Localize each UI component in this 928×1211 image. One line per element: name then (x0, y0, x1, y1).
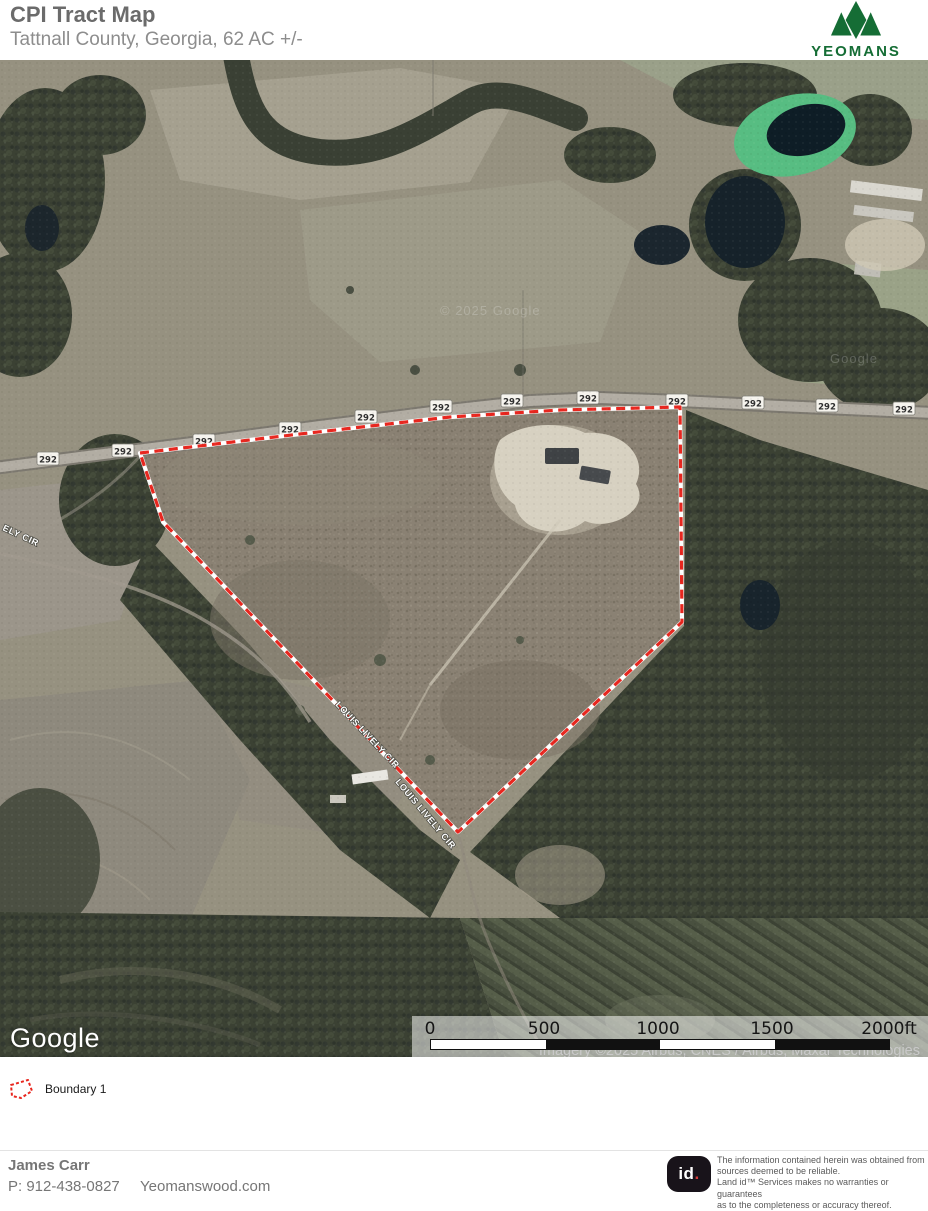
boundary-legend-icon (8, 1078, 34, 1100)
tract-map-page: CPI Tract Map Tattnall County, Georgia, … (0, 0, 928, 1200)
legend: Boundary 1 (8, 1078, 106, 1100)
brand-name: YEOMANS (792, 44, 920, 59)
page-title: CPI Tract Map (10, 2, 155, 28)
google-logo: Google (10, 1023, 100, 1054)
agent-phone: P: 912-438-0827 (8, 1178, 120, 1195)
land-id-mark: id (678, 1164, 694, 1184)
scale-tick-500: 500 (528, 1019, 560, 1039)
header: CPI Tract Map Tattnall County, Georgia, … (0, 0, 928, 60)
scale-segment (660, 1040, 775, 1049)
land-id-logo: id. (667, 1156, 711, 1192)
scale-segment (431, 1040, 546, 1049)
trees-icon (830, 1, 882, 39)
scale-tick-1000: 1000 (636, 1019, 679, 1039)
map-canvas: © 2025 Google Google 292 292 292 292 292… (0, 60, 928, 1057)
page-subtitle: Tattnall County, Georgia, 62 AC +/- (10, 29, 303, 51)
scale-tick-0: 0 (425, 1019, 436, 1039)
footer-divider (0, 1150, 928, 1151)
agent-name: James Carr (8, 1157, 90, 1174)
scale-tick-1500: 1500 (750, 1019, 793, 1039)
scale-segment (546, 1040, 661, 1049)
company-website: Yeomanswood.com (140, 1178, 270, 1195)
land-id-dot: . (694, 1164, 699, 1184)
scale-segment (775, 1040, 890, 1049)
scale-bar (430, 1039, 890, 1050)
satellite-map: © 2025 Google Google 292 292 292 292 292… (0, 60, 928, 1057)
legend-item-label: Boundary 1 (45, 1082, 106, 1096)
disclaimer-text: The information contained herein was obt… (717, 1155, 928, 1211)
scale-tick-2000ft: 2000ft (861, 1019, 917, 1039)
company-logo: YEOMANS WOOD & TIMBER (792, 1, 920, 69)
